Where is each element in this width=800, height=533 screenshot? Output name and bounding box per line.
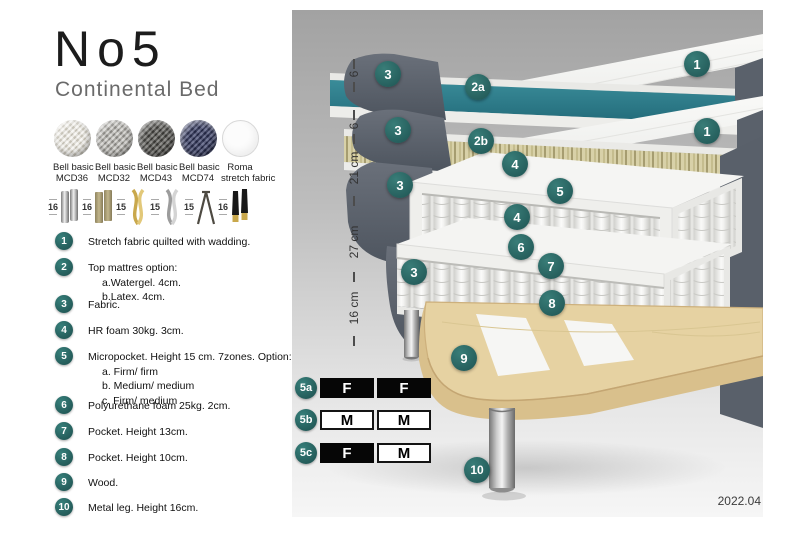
callout-badge: 9 (451, 345, 477, 371)
leg-height: 15 (183, 202, 195, 212)
firmness-row: 5c F M (295, 442, 431, 464)
fabric-swatch-icon (180, 120, 217, 157)
callout-badge: 1 (694, 118, 720, 144)
swatch-code: MCD32 (95, 173, 133, 184)
page-subtitle: Continental Bed (55, 78, 219, 102)
swatch-label: Bell basic (179, 162, 217, 173)
spec-list-item: 7 Pocket. Height 13cm. (55, 422, 188, 440)
swatch-code: MCD43 (137, 173, 175, 184)
callout-badge: 1 (684, 51, 710, 77)
scale-tick (353, 110, 355, 120)
leg-option: 15 (149, 188, 183, 226)
page-title: No5 (54, 20, 167, 78)
scale-tick (353, 272, 355, 282)
leg-option: 16 (217, 188, 251, 226)
swatch-label: Roma (221, 162, 259, 173)
callout-badge: 4 (504, 204, 530, 230)
spec-list-item: 3 Fabric. (55, 295, 120, 313)
callout-badge: 7 (538, 253, 564, 279)
spec-text: Stretch fabric quilted with wadding. (88, 235, 250, 250)
spec-text: Metal leg. Height 16cm. (88, 501, 198, 516)
firmness-option-badge: 5c (295, 442, 317, 464)
leg-height: 16 (217, 202, 229, 212)
list-number-badge: 5 (55, 347, 73, 365)
fabric-swatch-icon (54, 120, 91, 157)
scale-measure: 6 (347, 123, 361, 130)
callout-badge: 6 (508, 234, 534, 260)
list-number-badge: 10 (55, 498, 73, 516)
bed-cutaway-illustration (292, 10, 763, 517)
scale-tick (353, 82, 355, 92)
fabric-swatches: Bell basicMCD36 Bell basicMCD32 Bell bas… (53, 120, 259, 184)
firmness-cell: F (320, 443, 374, 463)
callout-badge: 2b (468, 128, 494, 154)
swatch-label: Bell basic (53, 162, 91, 173)
callout-badge: 3 (385, 117, 411, 143)
firmness-row: 5a F F (295, 377, 431, 399)
callout-badge: 5 (547, 178, 573, 204)
spec-subtext: a.Watergel. 4cm. (88, 276, 181, 291)
chrome-cylinder-leg-icon (59, 188, 81, 226)
list-number-badge: 3 (55, 295, 73, 313)
spec-text: Wood. (88, 476, 118, 491)
black-cone-leg-icon (229, 188, 251, 226)
leg-height: 15 (115, 202, 127, 212)
firmness-cell: M (320, 410, 374, 430)
scale-tick (353, 336, 355, 346)
spec-list-item: 6 Polyurethane foam 25kg. 2cm. (55, 396, 230, 414)
leg-height: 16 (81, 202, 93, 212)
list-number-badge: 7 (55, 422, 73, 440)
spec-text: Polyurethane foam 25kg. 2cm. (88, 399, 230, 414)
list-number-badge: 6 (55, 396, 73, 414)
list-number-badge: 2 (55, 258, 73, 276)
leg-height: 15 (149, 202, 161, 212)
scale-measure: 16 cm (347, 292, 361, 325)
swatch-code: MCD36 (53, 173, 91, 184)
fabric-swatch-icon (96, 120, 133, 157)
firmness-cell: F (377, 378, 431, 398)
silver-twisted-leg-icon (161, 188, 183, 226)
spec-subtext: b. Medium/ medium (88, 379, 292, 394)
product-sheet: No5 Continental Bed Bell basicMCD36 Bell… (0, 0, 800, 533)
fabric-swatch-option: Bell basicMCD36 (53, 120, 91, 184)
callout-badge: 2a (465, 74, 491, 100)
spec-list-item: 4 HR foam 30kg. 3cm. (55, 321, 184, 339)
swatch-label: Bell basic (137, 162, 175, 173)
scale-tick (353, 59, 355, 69)
spec-subtext: a. Firm/ firm (88, 365, 292, 380)
swatch-code: MCD74 (179, 173, 217, 184)
spec-text: Pocket. Height 10cm. (88, 451, 188, 466)
diagram-panel: 6 6 21 cm 27 cm 16 cm 3 2a 1 3 2b 1 4 5 … (292, 10, 763, 517)
scale-tick (353, 196, 355, 206)
wood-block-leg-icon (93, 188, 115, 226)
spec-list-item: 1 Stretch fabric quilted with wadding. (55, 232, 250, 250)
firmness-option-badge: 5b (295, 409, 317, 431)
hairpin-leg-icon (195, 188, 217, 226)
scale-measure: 6 (347, 71, 361, 78)
list-number-badge: 8 (55, 448, 73, 466)
callout-badge: 3 (375, 61, 401, 87)
fabric-swatch-icon (138, 120, 175, 157)
callout-badge: 3 (387, 172, 413, 198)
firmness-cell: F (320, 378, 374, 398)
leg-option: 15 (183, 188, 217, 226)
leg-height: 16 (47, 202, 59, 212)
fabric-swatch-option: Bell basicMCD32 (95, 120, 133, 184)
leg-options: 16 16 15 15 (47, 188, 251, 226)
list-number-badge: 9 (55, 473, 73, 491)
fabric-swatch-option: Bell basicMCD74 (179, 120, 217, 184)
version-label: 2022.04 (718, 494, 761, 508)
list-number-badge: 1 (55, 232, 73, 250)
spec-text: Top mattres option: (88, 261, 181, 276)
firmness-row: 5b M M (295, 409, 431, 431)
gold-twisted-leg-icon (127, 188, 149, 226)
spec-list-item: 8 Pocket. Height 10cm. (55, 448, 188, 466)
scale-measure: 21 cm (347, 152, 361, 185)
callout-badge: 3 (401, 259, 427, 285)
firmness-cell: M (377, 410, 431, 430)
fabric-swatch-option: Bell basicMCD43 (137, 120, 175, 184)
spec-text: HR foam 30kg. 3cm. (88, 324, 184, 339)
spec-text: Fabric. (88, 298, 120, 313)
spec-list-item: 10 Metal leg. Height 16cm. (55, 498, 198, 516)
spec-text: Micropocket. Height 15 cm. 7zones. Optio… (88, 350, 292, 365)
leg-option: 16 (47, 188, 81, 226)
scale-measure: 27 cm (347, 226, 361, 259)
fabric-swatch-icon (222, 120, 259, 157)
firmness-cell: M (377, 443, 431, 463)
scale-tick (353, 134, 355, 144)
swatch-code: stretch fabric (221, 173, 259, 184)
spec-text: Pocket. Height 13cm. (88, 425, 188, 440)
leg-option: 15 (115, 188, 149, 226)
spec-list-item: 9 Wood. (55, 473, 118, 491)
list-number-badge: 4 (55, 321, 73, 339)
callout-badge: 10 (464, 457, 490, 483)
callout-badge: 4 (502, 151, 528, 177)
firmness-option-badge: 5a (295, 377, 317, 399)
callout-badge: 8 (539, 290, 565, 316)
fabric-swatch-option: Romastretch fabric (221, 120, 259, 184)
leg-option: 16 (81, 188, 115, 226)
swatch-label: Bell basic (95, 162, 133, 173)
